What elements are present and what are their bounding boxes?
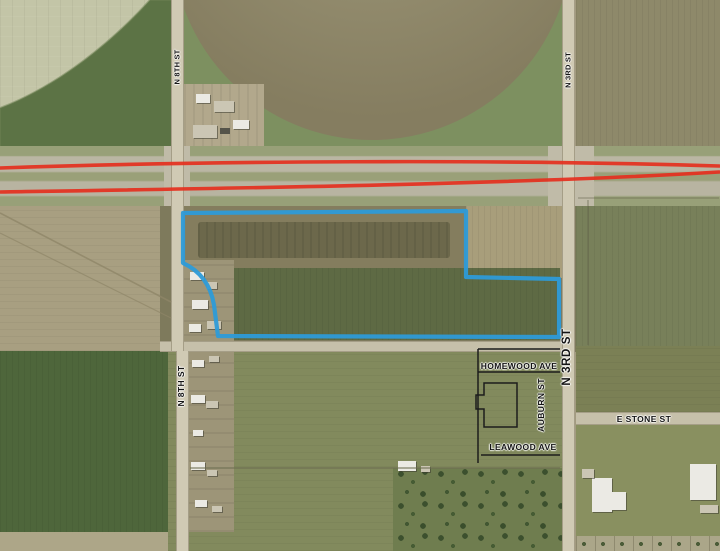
building [191,395,205,403]
building [195,500,207,507]
field-top-left [0,0,172,147]
field-tan-patch [466,204,562,278]
field-top-right [576,0,720,146]
building [189,324,201,332]
building [207,282,217,289]
road-ew-south-of-parcel [160,341,575,352]
building [209,356,219,362]
building [612,492,626,510]
building [398,461,416,471]
residential-lot-strip [576,536,720,551]
road-label-n-3rd-st-middle: N 3RD ST [561,328,573,385]
building [690,464,716,500]
road-label-n-3rd-st-top: N 3RD ST [564,52,573,88]
aerial-plat-map: N 8TH ST N 3RD ST N 3RD ST N 8TH ST HOME… [0,0,720,551]
strip-bottom-left [0,532,171,551]
field-right-upper [576,346,720,412]
building [193,430,203,436]
building [582,469,594,478]
building [212,506,222,512]
building [192,300,208,309]
building [206,401,218,408]
building [191,462,205,470]
building [700,505,718,513]
road-label-n-8th-st-top: N 8TH ST [173,50,182,85]
field-left-middle [0,205,171,351]
road-label-auburn-st: AUBURN ST [536,378,546,432]
building [192,360,204,367]
building [421,466,430,472]
tree-cluster [393,468,562,551]
highway-corridor [0,146,720,206]
road-label-homewood-ave: HOMEWOOD AVE [481,361,558,371]
road-label-n-8th-st-bottom: N 8TH ST [176,366,186,407]
building [190,272,204,280]
building [214,101,234,112]
building [193,125,217,138]
building [220,128,230,134]
building [207,470,217,476]
building [233,120,249,129]
field-right-middle [576,196,720,346]
building [207,321,221,329]
parcel-green-field [184,268,560,340]
road-label-e-stone-st: E STONE ST [617,414,671,424]
building [196,94,210,103]
road-label-leawood-ave: LEAWOOD AVE [489,442,556,452]
fallow-dark-band [198,222,450,258]
field-bottom-left [0,351,171,532]
building [592,478,612,512]
